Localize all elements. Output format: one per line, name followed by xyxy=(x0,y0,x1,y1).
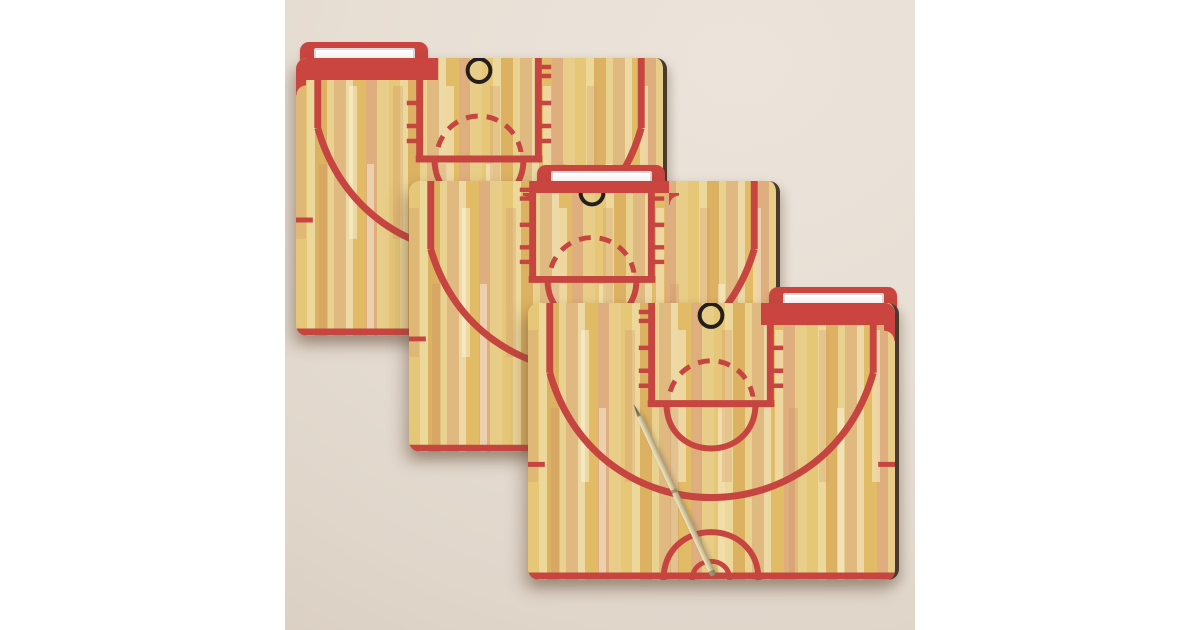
tab-corner-notch xyxy=(296,80,306,95)
white-side-panel-left xyxy=(0,0,285,630)
desk-background xyxy=(285,0,915,630)
folder-body xyxy=(528,303,899,580)
white-side-panel-right xyxy=(915,0,1200,630)
tab-corner-notch xyxy=(669,193,679,205)
tab-base-band xyxy=(533,181,669,193)
tab-base-band xyxy=(296,58,438,80)
basketball-court-graphic xyxy=(528,303,895,580)
tab-corner-notch xyxy=(884,325,895,341)
file-folder-front xyxy=(528,287,899,580)
tab-corner-notch xyxy=(523,193,533,205)
tab-base-band xyxy=(761,303,895,325)
